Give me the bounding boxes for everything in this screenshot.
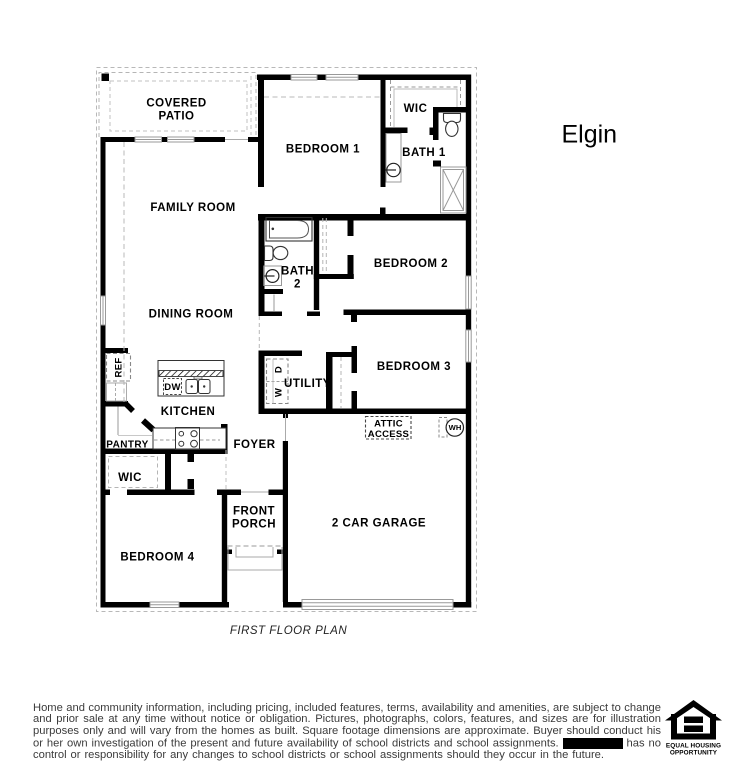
svg-text:COVERED: COVERED [146,98,206,110]
svg-text:WIC: WIC [118,472,142,484]
svg-text:PATIO: PATIO [159,111,195,123]
svg-text:ATTIC: ATTIC [374,419,403,430]
svg-text:FRONT: FRONT [233,506,275,518]
svg-text:BATH: BATH [281,266,314,278]
svg-text:BEDROOM 3: BEDROOM 3 [377,361,451,373]
svg-text:EQUAL HOUSING: EQUAL HOUSING [666,743,721,750]
svg-text:OPPORTUNITY: OPPORTUNITY [670,750,718,757]
svg-text:BEDROOM 1: BEDROOM 1 [286,144,360,156]
svg-text:BATH 1: BATH 1 [402,147,446,159]
svg-text:WIC: WIC [404,103,428,115]
svg-text:FIRST FLOOR PLAN: FIRST FLOOR PLAN [230,625,347,637]
svg-text:KITCHEN: KITCHEN [161,406,216,418]
svg-text:FOYER: FOYER [233,439,275,451]
svg-text:UTILITY: UTILITY [284,378,331,390]
svg-text:DW: DW [164,382,180,393]
svg-text:PORCH: PORCH [232,519,276,531]
svg-text:DINING ROOM: DINING ROOM [149,309,234,321]
svg-text:FAMILY ROOM: FAMILY ROOM [150,202,235,214]
svg-text:ACCESS: ACCESS [368,429,409,440]
svg-text:W: W [274,388,285,397]
svg-text:2: 2 [294,279,301,291]
svg-text:D: D [274,366,285,373]
svg-text:REF: REF [114,358,125,378]
svg-text:PANTRY: PANTRY [106,440,148,451]
svg-text:Elgin: Elgin [562,121,618,149]
svg-text:WH: WH [449,423,462,432]
svg-text:BEDROOM 4: BEDROOM 4 [120,552,194,564]
svg-text:2 CAR GARAGE: 2 CAR GARAGE [332,518,426,530]
svg-text:BEDROOM 2: BEDROOM 2 [374,258,448,270]
